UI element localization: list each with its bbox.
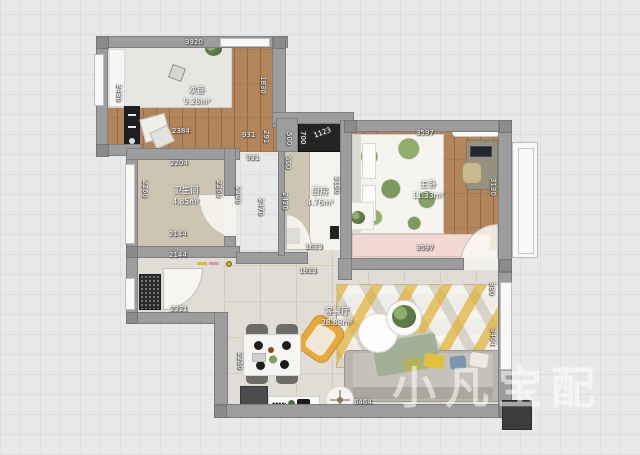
wall-corner-pad xyxy=(96,36,109,49)
wall xyxy=(214,312,228,418)
wall-corner-pad xyxy=(499,259,512,272)
dimension-label: 3464 xyxy=(489,328,496,346)
desk-chair xyxy=(462,162,482,184)
wall xyxy=(344,258,464,270)
dimension-label: 500 xyxy=(285,132,292,145)
room-label-secondary-bedroom: 次卧 9.28m² xyxy=(183,86,210,106)
room-area: 11.33m² xyxy=(412,191,444,200)
room-name: 厨房 xyxy=(306,187,333,198)
bowl xyxy=(268,347,274,353)
dimension-label: 700 xyxy=(299,131,306,144)
dimension-label: 2384 xyxy=(172,128,190,135)
kitchen-item xyxy=(330,226,339,239)
plate xyxy=(254,341,263,350)
entry-doormat xyxy=(139,274,161,310)
armchair-cushion xyxy=(303,322,337,358)
wall xyxy=(338,258,352,280)
dimension-label: 1623 xyxy=(305,244,323,251)
room-label-kitchen: 厨房 4.76m² xyxy=(306,187,333,207)
room-area: 9.28m² xyxy=(183,97,210,106)
window xyxy=(220,38,270,47)
window xyxy=(94,54,104,106)
dimension-label: 2204 xyxy=(170,160,188,167)
dimension-label: 6464 xyxy=(354,399,372,406)
bed-pillow xyxy=(362,143,376,179)
mat-plant xyxy=(351,211,365,224)
room-label-master-bedroom: 主卧 11.33m² xyxy=(412,180,444,200)
dimension-label: 3150 xyxy=(333,176,340,194)
room-name: 次卧 xyxy=(183,86,210,97)
wall-decor-pink xyxy=(209,262,219,265)
dimension-label: 1923 xyxy=(299,268,317,275)
wall xyxy=(236,252,308,264)
window xyxy=(125,164,135,244)
dimension-label: 380 xyxy=(488,282,495,295)
dimension-label: 2320 xyxy=(234,186,241,204)
bay-window-inner-line xyxy=(518,148,534,254)
dimension-label: 2430 xyxy=(115,84,122,102)
table-plant-sprig xyxy=(268,355,278,364)
bay-window xyxy=(512,142,538,258)
wall-corner-pad xyxy=(126,246,138,258)
room-label-living-dining: 客餐厅 28.88m² xyxy=(321,307,353,327)
dimension-label: 2321 xyxy=(170,306,188,313)
dimension-label: 3920 xyxy=(185,39,203,46)
dimension-label: 2420 xyxy=(281,192,288,210)
dimension-label: 2260 xyxy=(141,180,148,198)
plate xyxy=(280,360,289,369)
coffee-table-plant xyxy=(392,305,416,328)
room-area: 28.88m² xyxy=(321,318,353,327)
plate xyxy=(282,341,291,350)
watermark-text: 小凡宝配 xyxy=(392,352,640,416)
plate xyxy=(256,361,265,370)
monitor-icon xyxy=(470,146,492,157)
dimension-label: 3130 xyxy=(489,178,496,196)
dimension-label: 2144 xyxy=(169,231,187,238)
window xyxy=(125,278,135,310)
dimension-label: 1830 xyxy=(259,76,266,94)
hanger-icon xyxy=(128,126,136,128)
wall-corner-pad xyxy=(273,36,286,49)
dimension-label: 500 xyxy=(284,156,291,169)
wall-corner-pad xyxy=(214,405,227,418)
dimension-label: 2470 xyxy=(257,198,264,216)
room-name: 主卧 xyxy=(412,180,444,191)
fan-hub xyxy=(337,397,343,403)
dimension-label: 2144 xyxy=(169,252,187,259)
master-door-opening xyxy=(464,258,498,270)
dimension-label: 2250 xyxy=(236,352,243,370)
dimension-label: 291 xyxy=(262,130,269,143)
dimension-label: 2260 xyxy=(215,180,222,198)
room-label-bathroom: 卫生间 4.85m² xyxy=(172,186,199,206)
floor-plan-canvas: 次卧 9.28m² 卫生间 4.85m² 厨房 4.76m² 主卧 11.33m… xyxy=(0,0,640,455)
dining-table xyxy=(243,334,301,376)
hanger-icon xyxy=(128,114,136,116)
wall-decor-yellow xyxy=(197,262,207,265)
wall-decor-knob xyxy=(226,261,232,267)
dimension-label: 3597 xyxy=(416,245,434,252)
tray xyxy=(252,353,266,362)
room-name: 卫生间 xyxy=(172,186,199,197)
room-area: 4.85m² xyxy=(172,197,199,206)
wall xyxy=(340,120,352,272)
room-area: 4.76m² xyxy=(306,198,333,207)
wall-corner-pad xyxy=(344,120,357,133)
dimension-label: 3597 xyxy=(416,130,434,137)
wall xyxy=(498,120,512,272)
wall-corner-pad xyxy=(96,144,109,157)
wall-corner-pad xyxy=(499,120,512,133)
wall-corner-pad xyxy=(126,312,138,324)
dimension-label: 931 xyxy=(246,155,259,162)
wall xyxy=(126,312,228,324)
room-name: 客餐厅 xyxy=(321,307,353,318)
dimension-label: 931 xyxy=(242,132,255,139)
